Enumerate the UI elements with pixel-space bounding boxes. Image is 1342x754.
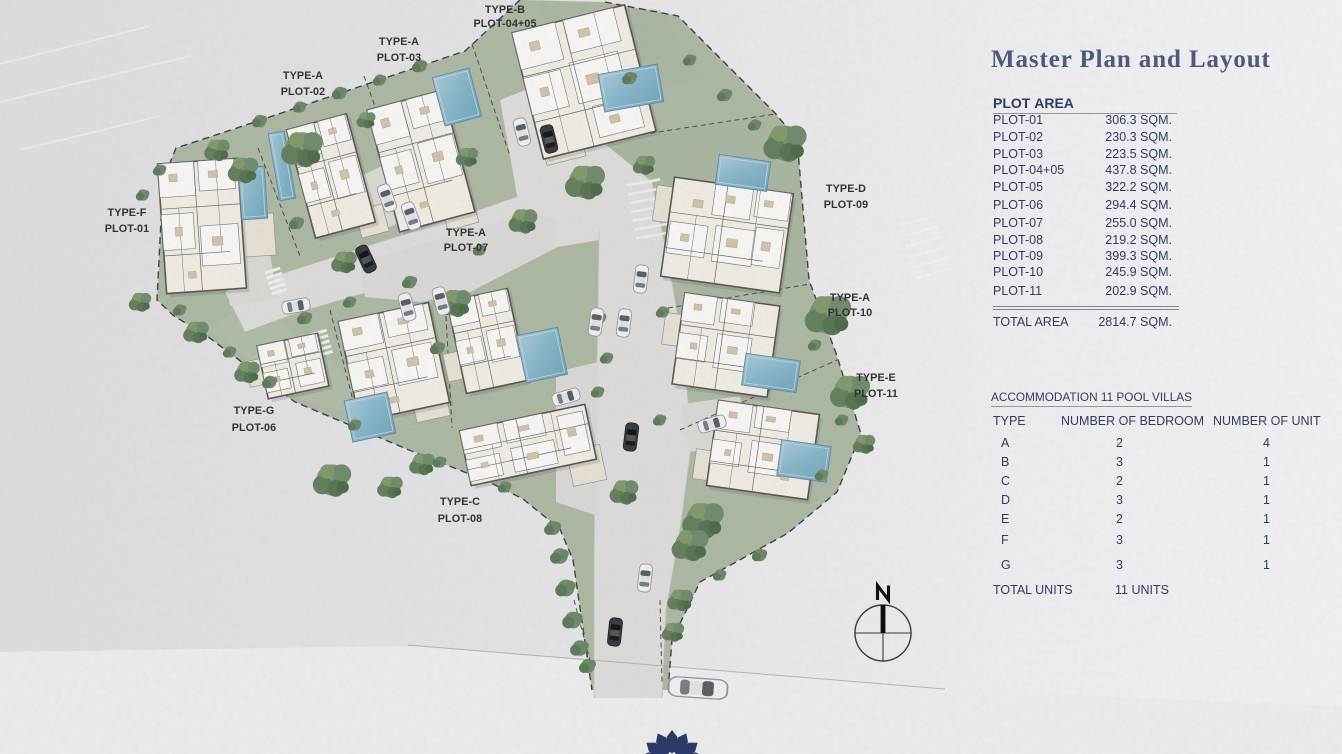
svg-text:TYPE-A: TYPE-A [283, 70, 323, 82]
svg-text:TYPE-C: TYPE-C [440, 496, 480, 508]
svg-text:TYPE-A: TYPE-A [446, 227, 486, 239]
svg-text:PLOT-04+05: PLOT-04+05 [473, 18, 536, 30]
svg-text:PLOT-01: PLOT-01 [105, 223, 150, 235]
svg-text:PLOT-03: PLOT-03 [377, 52, 422, 64]
svg-text:PLOT-09: PLOT-09 [824, 199, 869, 211]
svg-text:TYPE-G: TYPE-G [234, 405, 275, 417]
svg-text:TYPE-F: TYPE-F [108, 207, 147, 219]
svg-text:PLOT-08: PLOT-08 [438, 513, 483, 525]
svg-text:TYPE-B: TYPE-B [485, 4, 525, 16]
svg-text:TYPE-D: TYPE-D [826, 183, 866, 195]
svg-text:PLOT-02: PLOT-02 [281, 86, 326, 98]
svg-text:TYPE-A: TYPE-A [379, 36, 419, 48]
svg-text:TYPE-E: TYPE-E [856, 372, 896, 384]
svg-text:PLOT-11: PLOT-11 [854, 388, 898, 400]
svg-text:PLOT-07: PLOT-07 [444, 242, 489, 254]
svg-text:PLOT-10: PLOT-10 [828, 307, 873, 319]
svg-text:TYPE-A: TYPE-A [830, 292, 870, 304]
svg-text:PLOT-06: PLOT-06 [232, 422, 277, 434]
